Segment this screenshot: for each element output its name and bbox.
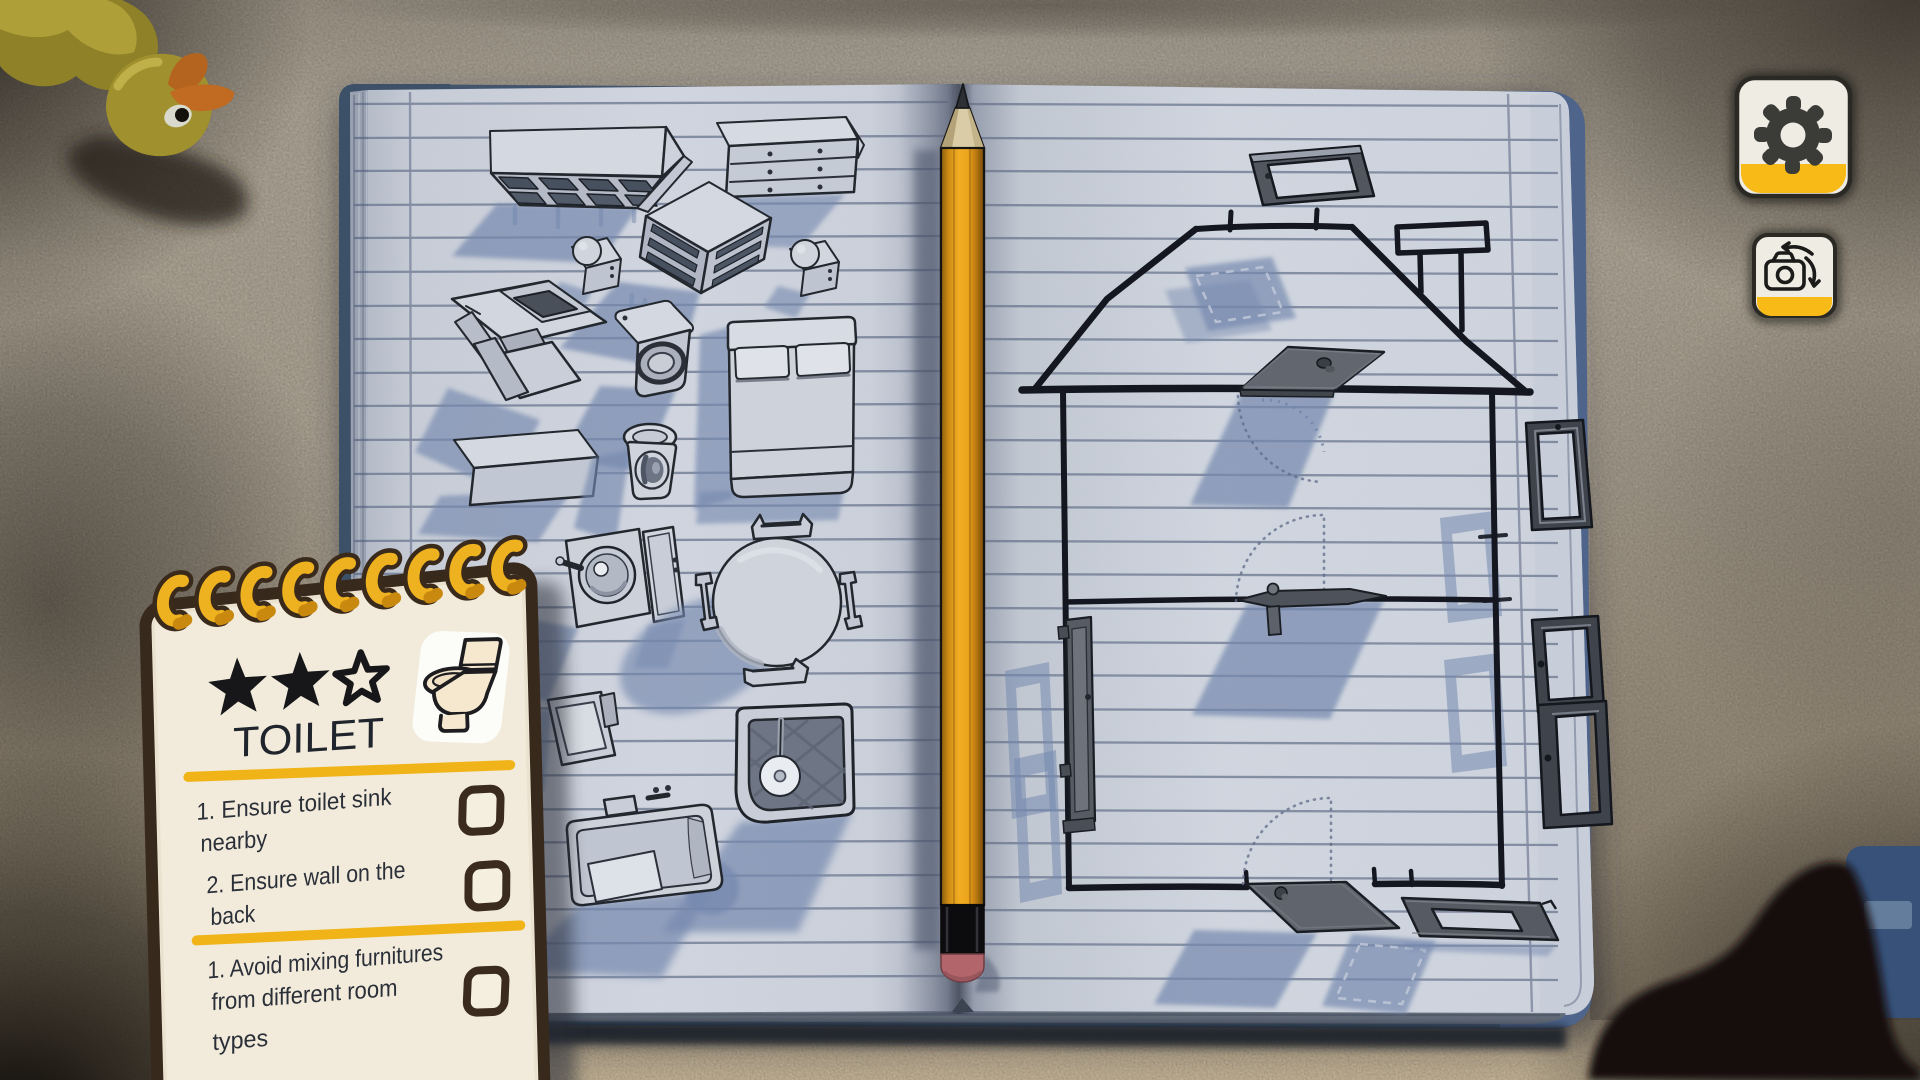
svg-text:nearby: nearby [200,825,267,857]
svg-text:back: back [210,901,256,932]
svg-text:types: types [212,1025,268,1056]
